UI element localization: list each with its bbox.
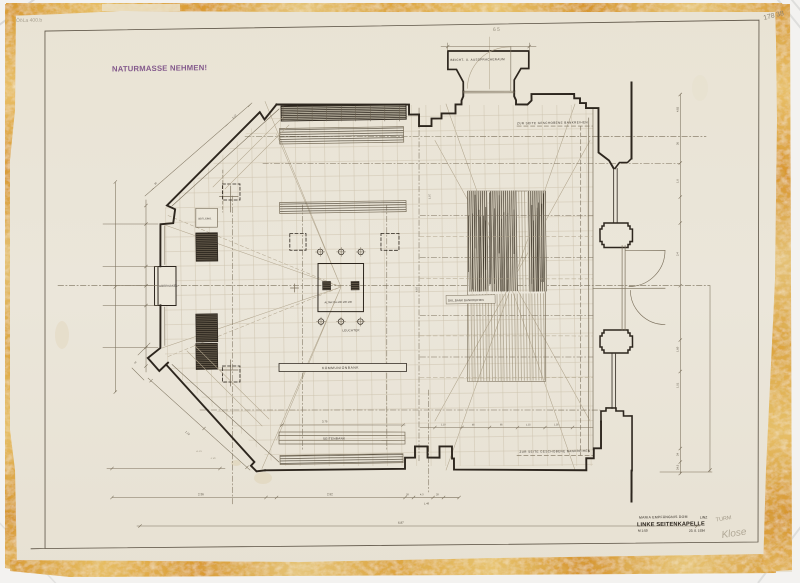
svg-text:KOMMUNIONBANK: KOMMUNIONBANK	[322, 366, 359, 371]
svg-text:2.36: 2.36	[198, 492, 204, 496]
svg-text:3.75: 3.75	[322, 419, 328, 423]
svg-text:1.15: 1.15	[526, 423, 531, 426]
svg-text:6.87: 6.87	[398, 521, 404, 525]
svg-text:2.92: 2.92	[327, 492, 333, 496]
svg-text:6 5: 6 5	[493, 27, 500, 33]
svg-text:1.07: 1.07	[427, 193, 431, 199]
svg-text:2.4: 2.4	[675, 252, 679, 256]
svg-text:1.60: 1.60	[675, 346, 679, 352]
svg-text:1.35: 1.35	[554, 423, 559, 426]
svg-text:4.16: 4.16	[414, 286, 418, 292]
svg-text:TABERNAKEL: TABERNAKEL	[157, 284, 178, 288]
svg-text:SEITENBANK: SEITENBANK	[323, 436, 346, 440]
svg-text:BEICHT- U. AUSSPRACHERAUM: BEICHT- U. AUSSPRACHERAUM	[450, 57, 505, 62]
svg-text:-1 1/2: -1 1/2	[210, 458, 216, 460]
svg-text:1.51: 1.51	[675, 382, 679, 388]
svg-text:ÖöLa 400.b: ÖöLa 400.b	[16, 17, 42, 24]
svg-text:LINKE SEITENKAPELLE: LINKE SEITENKAPELLE	[637, 521, 705, 528]
svg-text:23. 8. 1934: 23. 8. 1934	[689, 529, 705, 533]
svg-text:1.48: 1.48	[424, 501, 430, 505]
svg-text:SEITL.EING.: SEITL.EING.	[198, 217, 212, 220]
svg-text:LEUCHTER: LEUCHTER	[342, 328, 359, 332]
svg-text:24.5: 24.5	[675, 464, 679, 470]
svg-text:1.10: 1.10	[441, 423, 446, 426]
svg-text:ALTAR CA.100 100 100: ALTAR CA.100 100 100	[324, 300, 352, 304]
svg-text:4.83: 4.83	[675, 106, 679, 112]
svg-text:MARIA EMPFÄNGNIS DOM: MARIA EMPFÄNGNIS DOM	[639, 515, 688, 520]
svg-text:M 1:50: M 1:50	[638, 529, 648, 533]
svg-text:NATURMASSE NEHMEN!: NATURMASSE NEHMEN!	[112, 63, 207, 73]
svg-text:1.0: 1.0	[675, 179, 679, 183]
svg-text:+1.23: +1.23	[196, 451, 202, 453]
svg-text:LINZ: LINZ	[700, 515, 707, 519]
svg-text:DKL.BANK BANKREIHEN: DKL.BANK BANKREIHEN	[448, 298, 484, 303]
